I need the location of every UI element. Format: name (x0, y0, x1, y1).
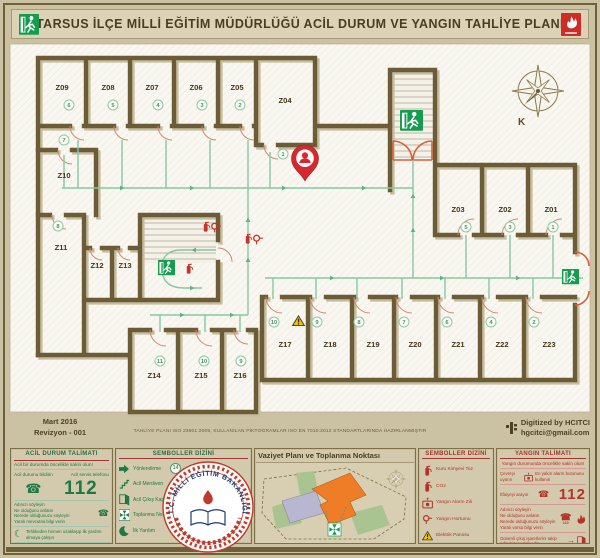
evacuation-route-icon (119, 540, 130, 544)
fire-alarm-button-icon (422, 497, 433, 509)
warn-label: Çevreyi uyarın (500, 471, 522, 482)
panel-symbols-red: SEMBOLLER DİZİNİ Kuru Kimyevi Toz CO2 Ya… (418, 448, 494, 544)
alarm-button-icon (524, 472, 533, 482)
room-label: Z10 (57, 171, 70, 180)
report-label: Acil durumu bildirin (14, 472, 53, 478)
room-label: Z16 (233, 371, 246, 380)
room-label: Z17 (278, 340, 291, 349)
fire-steps: Adınızı söyleyin Ne olduğunu anlatın Ner… (500, 507, 555, 530)
panel-title: YANGIN TALİMATI (500, 451, 586, 459)
phone-icon: ☎ (98, 509, 109, 518)
digitized-by: Digitized by HCITCI (521, 418, 590, 428)
emergency-intro: Acil bir durumda öncelikle sakin olun! (14, 463, 109, 471)
plan-date: Mart 2016 (14, 417, 106, 428)
room-label: Z01 (544, 205, 558, 214)
exit-sign-icon (562, 269, 579, 284)
alarm-note: En yakın alarm butonunu kullanın (535, 471, 586, 482)
panel-title: ACİL DURUM TALİMATI (14, 451, 109, 461)
digitized-email: hgcitci@gmail.com (521, 428, 590, 438)
panel-site-plan: Vaziyet Planı ve Toplanma Noktası (254, 448, 416, 544)
legend-item: Kuru Kimyevi Toz (422, 464, 490, 476)
ministry-of-education-logo: T.C. MİLLİ EĞİTİM BAKANLIĞI (161, 460, 255, 554)
evacuation-plan-poster: K Z09 Z08 Z07 Z06 Z05 Z04 Z10 Z11 Z12 Z1… (0, 0, 600, 558)
room-label: Z20 (408, 340, 421, 349)
room-label: Z09 (55, 83, 68, 92)
room-label: Z21 (451, 340, 465, 349)
legend-item: CO2 (422, 480, 490, 492)
panel-fire-instructions: YANGIN TALİMATI Yangın durumunda öncelik… (496, 448, 590, 544)
svg-text:7: 7 (62, 138, 65, 144)
compass-north-label: K (518, 117, 526, 128)
room-label: Z19 (366, 340, 379, 349)
digitized-credit: Digitized by HCITCI hgcitci@gmail.com (505, 418, 590, 438)
page-title: TARSUS İLÇE MİLLİ EĞİTİM MÜDÜRLÜĞÜ ACİL … (36, 17, 564, 31)
fire-intro: Yangın durumunda öncelikle sakin olun! (500, 461, 586, 466)
svg-text:2: 2 (238, 103, 241, 109)
legend-item: Yangın Hortumu (422, 513, 490, 525)
plan-revision: Revizyon - 001 (14, 428, 106, 439)
assembly-point-icon (328, 523, 341, 536)
room-label: Z04 (278, 96, 292, 105)
room-label: Z22 (495, 340, 508, 349)
fire-hose-icon (422, 513, 433, 525)
site-map (256, 463, 414, 543)
aid-note: Tehlikeden hemen uzaklaşıp ilk yardım al… (26, 529, 109, 540)
fire-number: 112 (559, 487, 586, 502)
direction-arrow-icon (119, 463, 130, 475)
revision-block: Mart 2016 Revizyon - 001 (14, 417, 106, 439)
standard-note: TAHLİYE PLANI ISO 23601:2009, KULLANILAN… (110, 429, 450, 434)
room-label: Z07 (145, 83, 158, 92)
exit-sign-icon (400, 110, 423, 131)
emergency-steps: Adınızı söyleyin Ne olduğunu anlatın Ner… (14, 502, 69, 524)
room-label: Z03 (451, 205, 464, 214)
phone-icon: ☎ (538, 490, 549, 499)
phone-icon: ☎ (25, 482, 41, 495)
room-label: Z18 (323, 340, 336, 349)
panel-emergency-instructions: ACİL DURUM TALİMATI Acil bir durumda önc… (10, 448, 113, 544)
svg-text:2: 2 (532, 320, 535, 326)
room-label: Z02 (498, 205, 511, 214)
svg-text:10: 10 (271, 320, 277, 326)
emergency-stairs-icon (119, 478, 130, 490)
room-label: Z15 (194, 371, 208, 380)
exit-running-man-icon (19, 13, 39, 36)
extinguisher-kkt-icon (422, 464, 433, 476)
room-label: Z11 (55, 243, 68, 252)
panel-title: SEMBOLLER DİZİNİ (119, 451, 248, 459)
fire-exit-note: Güvenli çıkış işaretlerini takip edip bi… (500, 536, 565, 544)
emergency-number: 112 (64, 479, 98, 498)
fire-icon (561, 13, 581, 36)
bottom-border-band (6, 547, 594, 552)
header: TARSUS İLÇE MİLLİ EĞİTİM MÜDÜRLÜĞÜ ACİL … (11, 9, 589, 39)
exit-door-icon (577, 535, 586, 544)
legend-item: Elektrik Panosu (422, 530, 490, 542)
crescent-first-aid-icon: ☾ (14, 530, 23, 540)
fire-dept-phone-icon: ☎110 (560, 513, 571, 526)
digitizer-logo-icon (505, 421, 518, 435)
flames-icon (576, 513, 586, 525)
site-plan-title: Vaziyet Planı ve Toplanma Noktası (256, 450, 414, 463)
first-aid-crescent-icon (119, 525, 130, 537)
svg-text:11: 11 (157, 359, 164, 365)
room-label: Z14 (147, 371, 161, 380)
exit-door-icon (119, 494, 130, 506)
room-label: Z12 (90, 261, 103, 270)
room-label: Z05 (230, 83, 244, 92)
svg-text:10: 10 (201, 359, 207, 365)
exit-sign-icon (158, 260, 175, 275)
electric-panel-warning-icon (422, 530, 433, 542)
svg-text:7: 7 (402, 320, 405, 326)
room-label: Z08 (101, 83, 114, 92)
room-label: Z13 (118, 261, 131, 270)
assembly-point-icon (119, 509, 130, 521)
call-label: İtfaiyeyi arayın (500, 492, 528, 498)
arrow-icon: → (567, 537, 575, 544)
room-label: Z23 (542, 340, 555, 349)
room-label: Z06 (189, 83, 202, 92)
extinguisher-co2-icon (422, 480, 433, 492)
panel-title: SEMBOLLER DİZİNİ (422, 451, 490, 459)
legend-item: Yangın Alarm Zili (422, 497, 490, 509)
